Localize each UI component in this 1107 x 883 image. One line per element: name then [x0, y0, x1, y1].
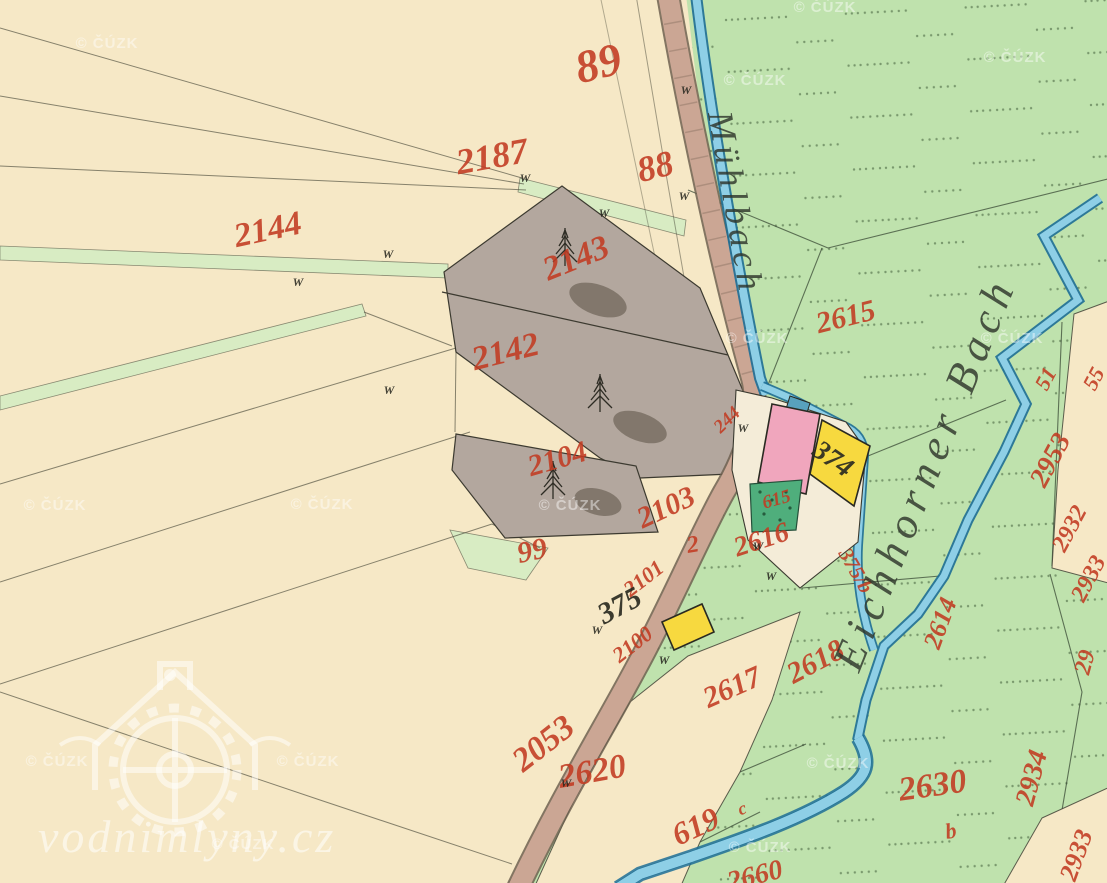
boundary-mark: W [592, 623, 604, 637]
cuzk-watermark: © ČÚZK [539, 496, 602, 514]
boundary-mark: W [520, 171, 532, 185]
boundary-mark: W [383, 247, 395, 261]
cuzk-watermark: © ČÚZK [277, 752, 340, 770]
boundary-mark: W [753, 539, 765, 553]
boundary-mark: W [659, 653, 671, 667]
boundary-mark: W [384, 383, 396, 397]
boundary-mark: W [766, 569, 778, 583]
boundary-mark: W [679, 189, 691, 203]
logo-watermark-text: vodnimlyny.cz [38, 811, 336, 862]
map-canvas: 8988218721442143214221042103299210121002… [0, 0, 1107, 883]
cuzk-watermark: © ČÚZK [76, 34, 139, 52]
cuzk-watermark: © ČÚZK [291, 495, 354, 513]
boundary-mark: W [599, 206, 611, 220]
boundary-mark: W [293, 275, 305, 289]
cadastral-map: 8988218721442143214221042103299210121002… [0, 0, 1107, 883]
boundary-mark: W [681, 83, 693, 97]
boundary-mark: W [561, 776, 573, 790]
cuzk-watermark: © ČÚZK [981, 329, 1044, 347]
cuzk-watermark: © ČÚZK [24, 496, 87, 514]
boundary-mark: W [738, 421, 750, 435]
cuzk-watermark: © ČÚZK [726, 329, 789, 347]
cuzk-watermark: © ČÚZK [724, 71, 787, 89]
cuzk-watermark: © ČÚZK [26, 752, 89, 770]
cuzk-watermark: © ČÚZK [794, 0, 857, 16]
cuzk-watermark: © ČÚZK [984, 48, 1047, 66]
cuzk-watermark: © ČÚZK [729, 838, 792, 856]
cuzk-watermark: © ČÚZK [807, 754, 870, 772]
